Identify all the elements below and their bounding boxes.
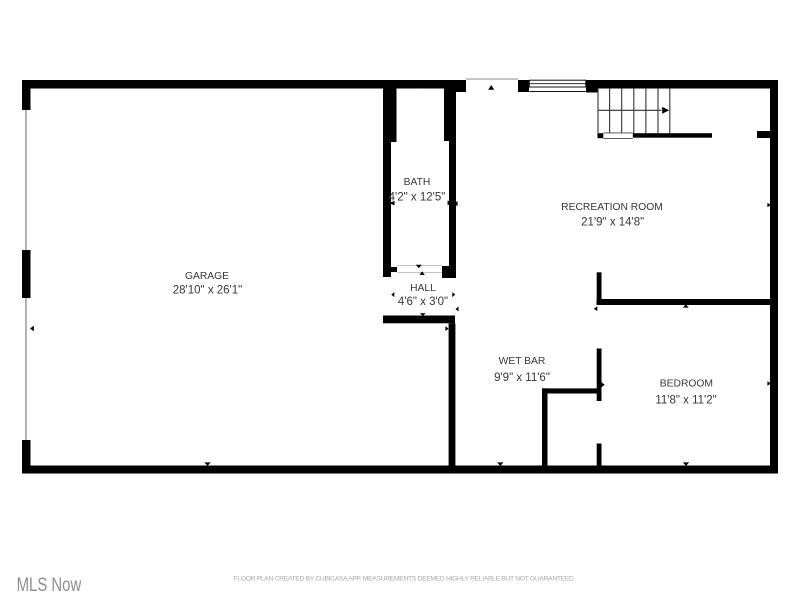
svg-text:HALL: HALL (410, 283, 436, 294)
svg-text:FLOOR PLAN CREATED BY CUBICASA: FLOOR PLAN CREATED BY CUBICASA APP. MEAS… (234, 575, 576, 582)
svg-text:GARAGE: GARAGE (185, 271, 229, 282)
svg-text:MLS Now: MLS Now (17, 573, 82, 595)
svg-text:WET BAR: WET BAR (499, 356, 546, 367)
svg-text:4'6" x 3'0": 4'6" x 3'0" (398, 296, 448, 308)
svg-text:BATH: BATH (404, 177, 431, 188)
svg-text:11'8" x 11'2": 11'8" x 11'2" (655, 394, 716, 406)
svg-text:4'2" x 12'5": 4'2" x 12'5" (389, 192, 446, 204)
svg-text:9'9" x 11'6": 9'9" x 11'6" (494, 372, 550, 384)
svg-text:21'9" x 14'8": 21'9" x 14'8" (581, 216, 644, 228)
svg-text:28'10" x 26'1": 28'10" x 26'1" (173, 284, 242, 296)
svg-text:RECREATION ROOM: RECREATION ROOM (561, 202, 663, 213)
svg-text:BEDROOM: BEDROOM (660, 379, 713, 390)
